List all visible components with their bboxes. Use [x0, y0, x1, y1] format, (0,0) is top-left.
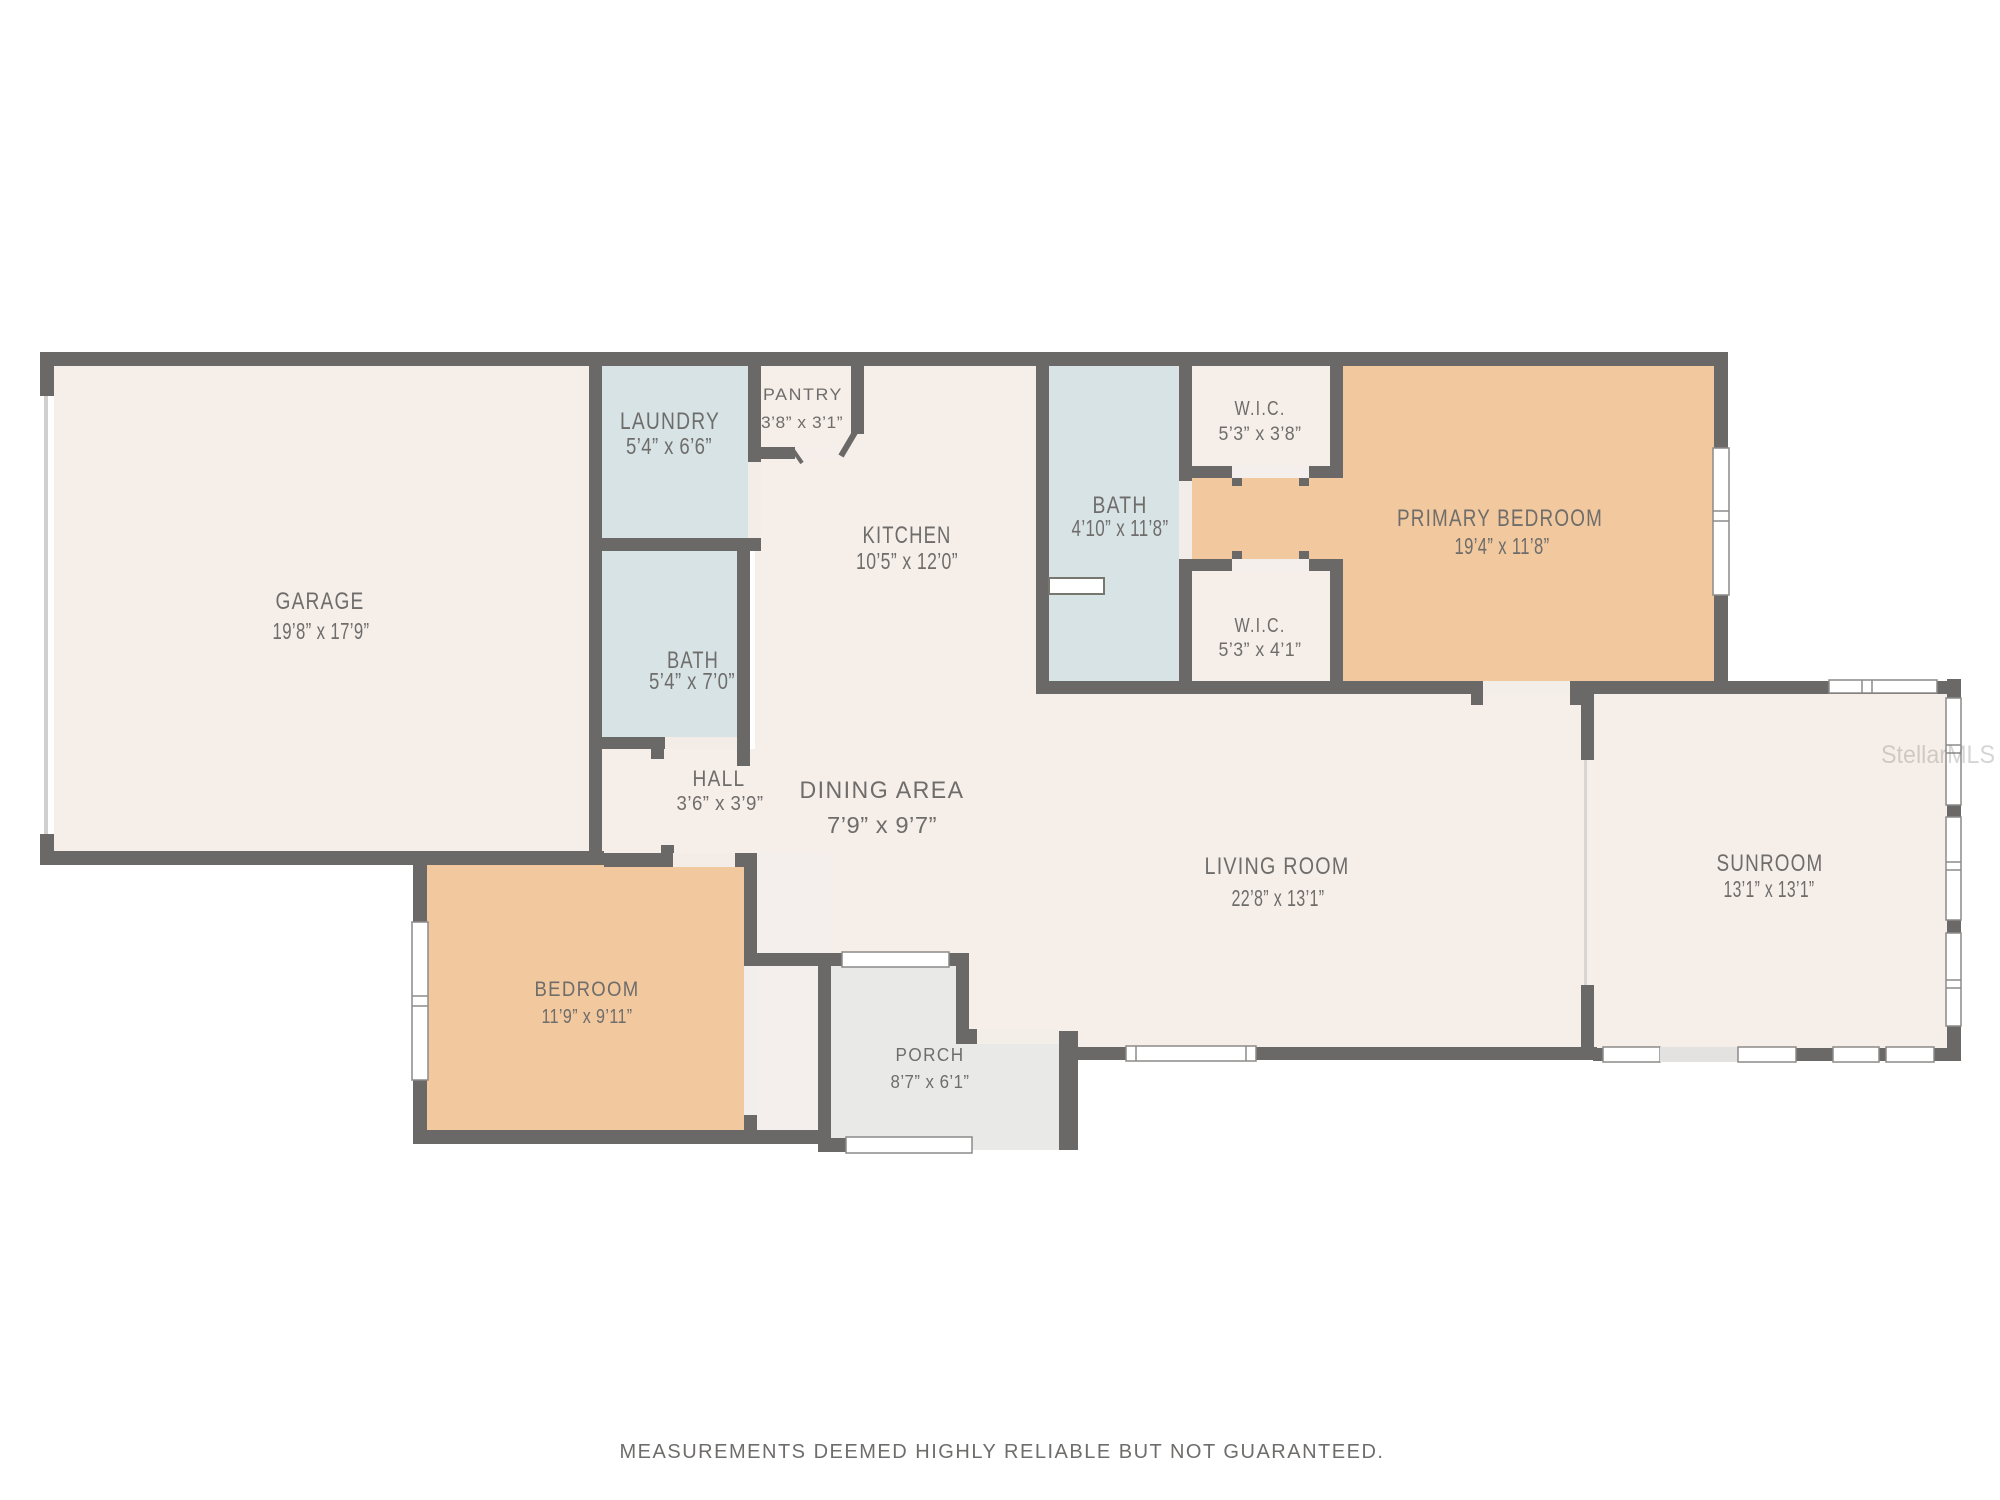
svg-text:LAUNDRY: LAUNDRY [620, 408, 720, 435]
svg-text:StellarMLS: StellarMLS [1881, 741, 1995, 769]
svg-text:8’7” x 6’1”: 8’7” x 6’1” [891, 1072, 970, 1092]
svg-text:5’3” x 4’1”: 5’3” x 4’1” [1219, 640, 1302, 661]
svg-text:SUNROOM: SUNROOM [1717, 850, 1824, 877]
svg-text:13’1” x 13’1”: 13’1” x 13’1” [1724, 876, 1815, 902]
svg-text:22’8” x 13’1”: 22’8” x 13’1” [1232, 885, 1325, 911]
svg-text:5’4” x 6’6”: 5’4” x 6’6” [626, 433, 712, 459]
svg-text:5’3” x 3’8”: 5’3” x 3’8” [1219, 424, 1302, 445]
svg-text:HALL: HALL [693, 766, 746, 791]
svg-text:W.I.C.: W.I.C. [1235, 615, 1286, 637]
svg-text:7’9” x 9’7”: 7’9” x 9’7” [827, 812, 937, 838]
svg-text:3’6” x 3’9”: 3’6” x 3’9” [677, 793, 764, 815]
svg-text:BEDROOM: BEDROOM [535, 978, 640, 1001]
svg-text:PORCH: PORCH [896, 1045, 965, 1065]
svg-text:3’8” x 3’1”: 3’8” x 3’1” [761, 413, 843, 432]
svg-text:PRIMARY BEDROOM: PRIMARY BEDROOM [1397, 505, 1603, 532]
svg-text:LIVING ROOM: LIVING ROOM [1205, 853, 1350, 880]
svg-text:19’8” x 17’9”: 19’8” x 17’9” [273, 618, 370, 644]
svg-text:GARAGE: GARAGE [276, 588, 365, 615]
svg-text:MEASUREMENTS DEEMED HIGHLY REL: MEASUREMENTS DEEMED HIGHLY RELIABLE BUT … [620, 1441, 1385, 1463]
svg-text:PANTRY: PANTRY [763, 385, 843, 404]
svg-text:W.I.C.: W.I.C. [1235, 398, 1286, 420]
svg-text:5’4” x 7’0”: 5’4” x 7’0” [649, 668, 735, 694]
svg-text:11’9” x 9’11”: 11’9” x 9’11” [542, 1006, 633, 1028]
svg-text:10’5” x 12’0”: 10’5” x 12’0” [856, 548, 958, 574]
svg-text:KITCHEN: KITCHEN [863, 522, 952, 549]
svg-text:DINING AREA: DINING AREA [800, 777, 965, 804]
svg-text:4’10” x 11’8”: 4’10” x 11’8” [1072, 515, 1169, 541]
svg-text:19’4” x 11’8”: 19’4” x 11’8” [1455, 533, 1550, 559]
